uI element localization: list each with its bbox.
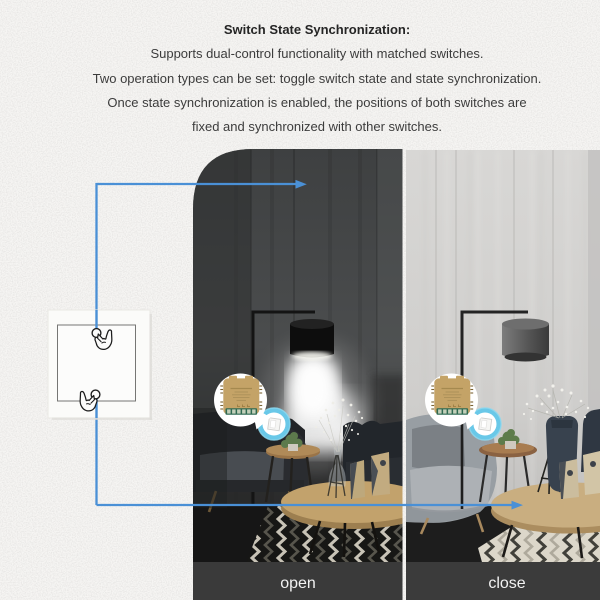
svg-text:close: close xyxy=(488,575,525,592)
svg-text:open: open xyxy=(280,575,316,592)
